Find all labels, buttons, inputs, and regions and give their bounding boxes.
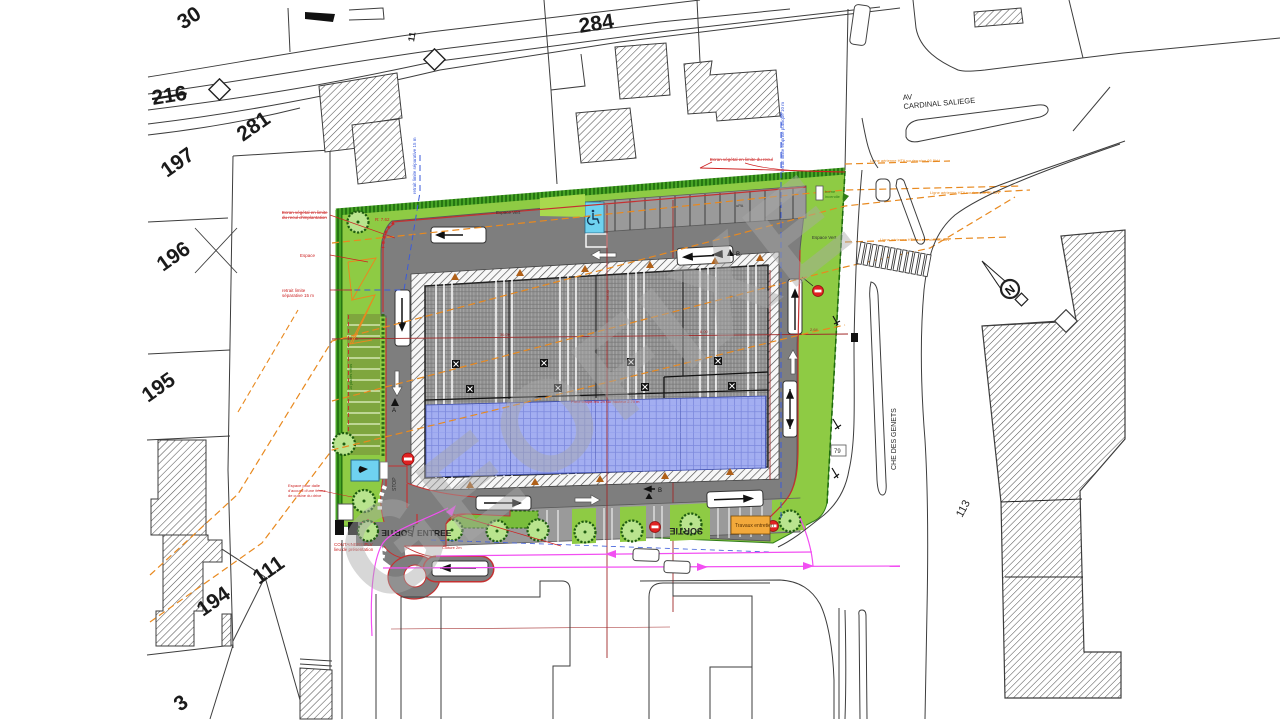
svg-text:Ligne aérienne HTA souterraine: Ligne aérienne HTA souterraine 66.5kV xyxy=(870,158,940,163)
svg-text:retrait limite séparative 15 m: retrait limite séparative 15 m xyxy=(412,137,417,194)
svg-text:79: 79 xyxy=(834,449,841,455)
svg-text:A: A xyxy=(392,408,396,414)
svg-text:36.00: 36.00 xyxy=(500,332,511,337)
svg-text:Ecran végétal en limite du rec: Ecran végétal en limite du recul xyxy=(710,157,773,162)
svg-text:de cuisine du drive: de cuisine du drive xyxy=(288,493,322,498)
svg-text:du recul d'implantation: du recul d'implantation xyxy=(282,215,327,220)
svg-text:SORTIE: SORTIE xyxy=(669,526,703,536)
svg-text:Espace Vert: Espace Vert xyxy=(496,210,521,215)
svg-text:B: B xyxy=(658,488,662,494)
svg-text:R: 7.62: R: 7.62 xyxy=(375,217,390,222)
svg-text:11: 11 xyxy=(406,31,418,42)
svg-text:séparative 15 m: séparative 15 m xyxy=(282,293,314,298)
svg-text:Espace: Espace xyxy=(300,253,316,258)
svg-text:CHE DES GENETS: CHE DES GENETS xyxy=(891,408,898,470)
svg-text:10 places vélos: 10 places vélos xyxy=(349,364,353,390)
svg-text:Travaux entretien: Travaux entretien xyxy=(735,523,774,529)
